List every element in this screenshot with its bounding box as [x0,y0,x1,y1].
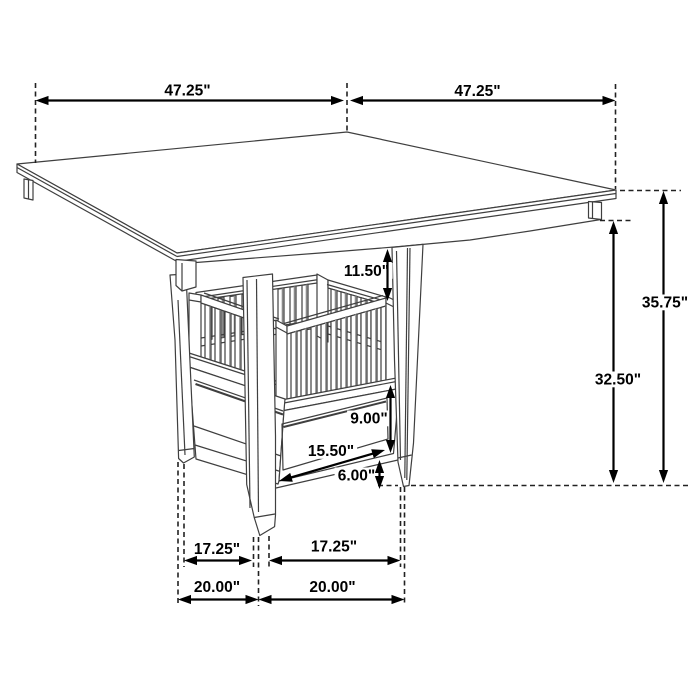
svg-text:20.00": 20.00" [194,579,240,596]
svg-text:32.50": 32.50" [595,372,641,389]
svg-text:15.50": 15.50" [308,443,354,460]
svg-text:20.00": 20.00" [309,579,355,596]
svg-text:17.25": 17.25" [311,539,357,556]
svg-text:11.50": 11.50" [344,263,389,280]
svg-text:35.75": 35.75" [642,295,688,312]
svg-text:47.25": 47.25" [454,83,500,100]
svg-text:6.00": 6.00" [338,468,376,485]
svg-text:17.25": 17.25" [194,541,240,558]
svg-text:47.25": 47.25" [164,83,210,100]
svg-text:9.00": 9.00" [350,411,388,428]
